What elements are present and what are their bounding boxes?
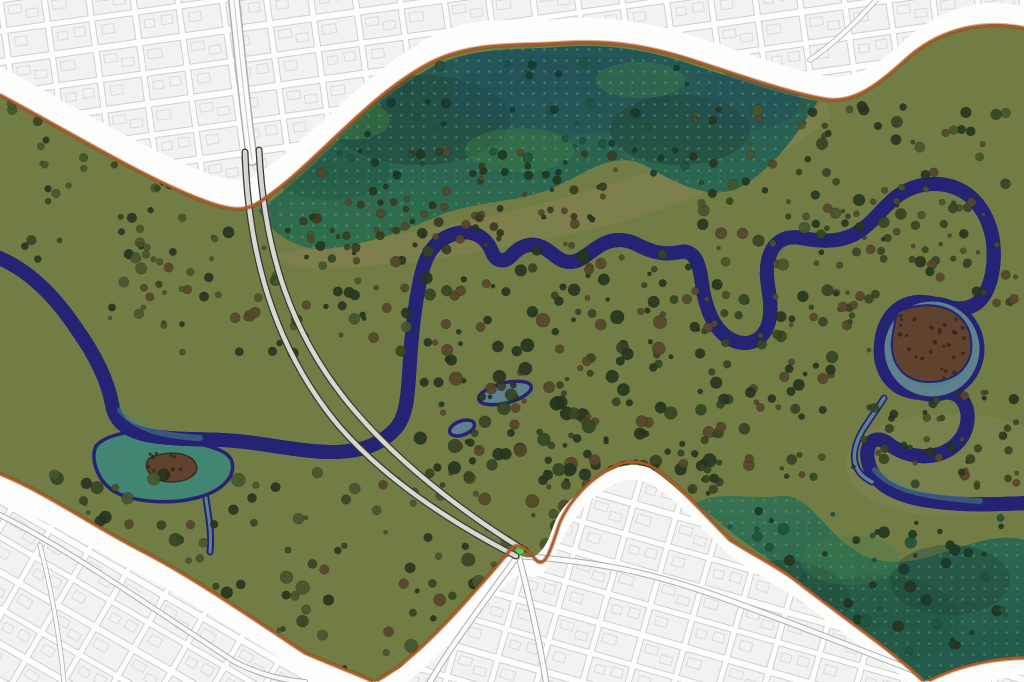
map-canvas	[0, 0, 1024, 682]
masterplan-map	[0, 0, 1024, 682]
